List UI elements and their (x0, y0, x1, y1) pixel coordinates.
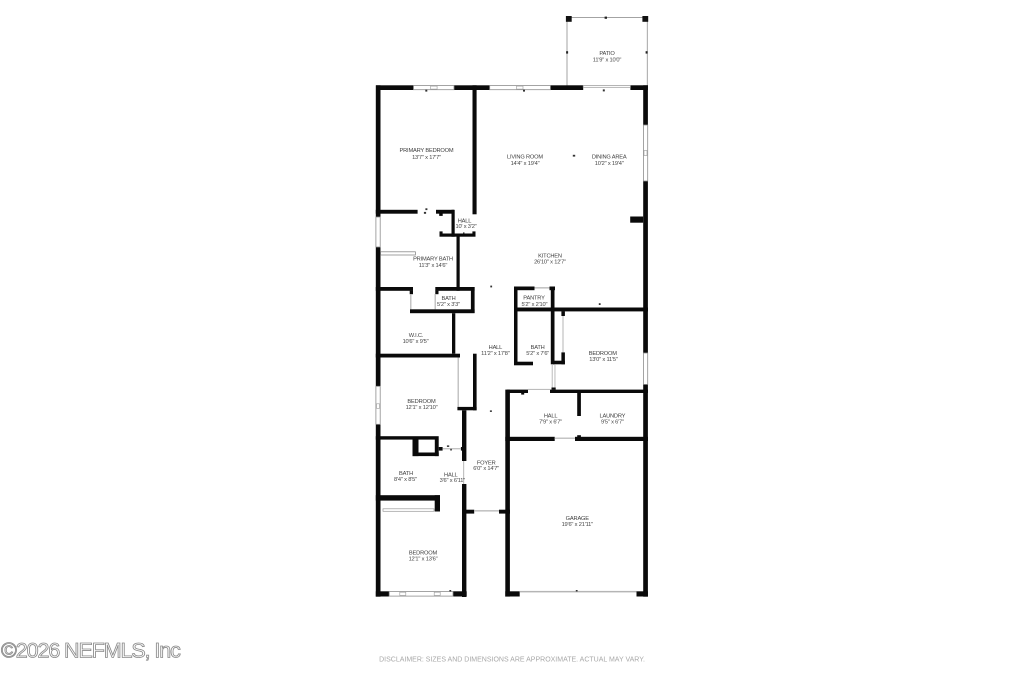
svg-text:10'2" x 19'4": 10'2" x 19'4" (595, 161, 624, 167)
svg-text:19'6" x 21'11": 19'6" x 21'11" (562, 522, 594, 528)
svg-text:7'9" x 6'7": 7'9" x 6'7" (539, 420, 562, 426)
svg-text:14'4" x 19'4": 14'4" x 19'4" (511, 161, 540, 167)
svg-text:GARAGE: GARAGE (566, 516, 590, 522)
svg-text:10' x 3'2": 10' x 3'2" (455, 224, 476, 230)
svg-text:©2026 NEFMLS, Inc: ©2026 NEFMLS, Inc (1, 639, 181, 663)
svg-text:9'5" x 6'7": 9'5" x 6'7" (601, 420, 624, 426)
svg-text:DINING AREA: DINING AREA (592, 155, 627, 161)
svg-text:11'2" x 17'8": 11'2" x 17'8" (481, 351, 510, 357)
svg-text:12'1" x 12'10": 12'1" x 12'10" (406, 405, 438, 411)
svg-text:PRIMARY BATH: PRIMARY BATH (413, 257, 453, 263)
svg-text:10'6" x 9'5": 10'6" x 9'5" (403, 339, 429, 345)
svg-text:11'9" x 10'0": 11'9" x 10'0" (593, 58, 622, 64)
svg-text:12'1" x 13'6": 12'1" x 13'6" (409, 557, 438, 563)
svg-text:13'7" x 17'7": 13'7" x 17'7" (412, 155, 441, 161)
svg-text:3'6" x 6'11": 3'6" x 6'11" (440, 478, 466, 484)
svg-text:26'10" x 12'7": 26'10" x 12'7" (534, 259, 566, 265)
svg-text:BEDROOM: BEDROOM (589, 351, 618, 357)
svg-text:5'2" x 7'6": 5'2" x 7'6" (526, 351, 549, 357)
svg-text:LIVING ROOM: LIVING ROOM (507, 155, 543, 161)
svg-text:PATIO: PATIO (599, 51, 615, 57)
svg-text:6'0" x 14'7": 6'0" x 14'7" (473, 466, 499, 472)
svg-text:PANTRY: PANTRY (523, 296, 545, 302)
svg-text:13'0" x 11'5": 13'0" x 11'5" (589, 357, 618, 363)
svg-text:HALL: HALL (489, 345, 503, 351)
svg-text:DISCLAIMER: SIZES AND DIMENSIO: DISCLAIMER: SIZES AND DIMENSIONS ARE APP… (379, 657, 645, 664)
svg-text:BATH: BATH (531, 345, 545, 351)
svg-text:11'3" x 14'6": 11'3" x 14'6" (419, 263, 448, 269)
svg-text:BATH: BATH (399, 471, 413, 477)
svg-text:BEDROOM: BEDROOM (409, 551, 438, 557)
svg-text:5'2" x 3'3": 5'2" x 3'3" (437, 302, 460, 308)
svg-text:5'2" x 2'10": 5'2" x 2'10" (521, 302, 547, 308)
svg-text:PRIMARY BEDROOM: PRIMARY BEDROOM (400, 148, 454, 154)
svg-text:8'4" x 8'5": 8'4" x 8'5" (394, 477, 417, 483)
